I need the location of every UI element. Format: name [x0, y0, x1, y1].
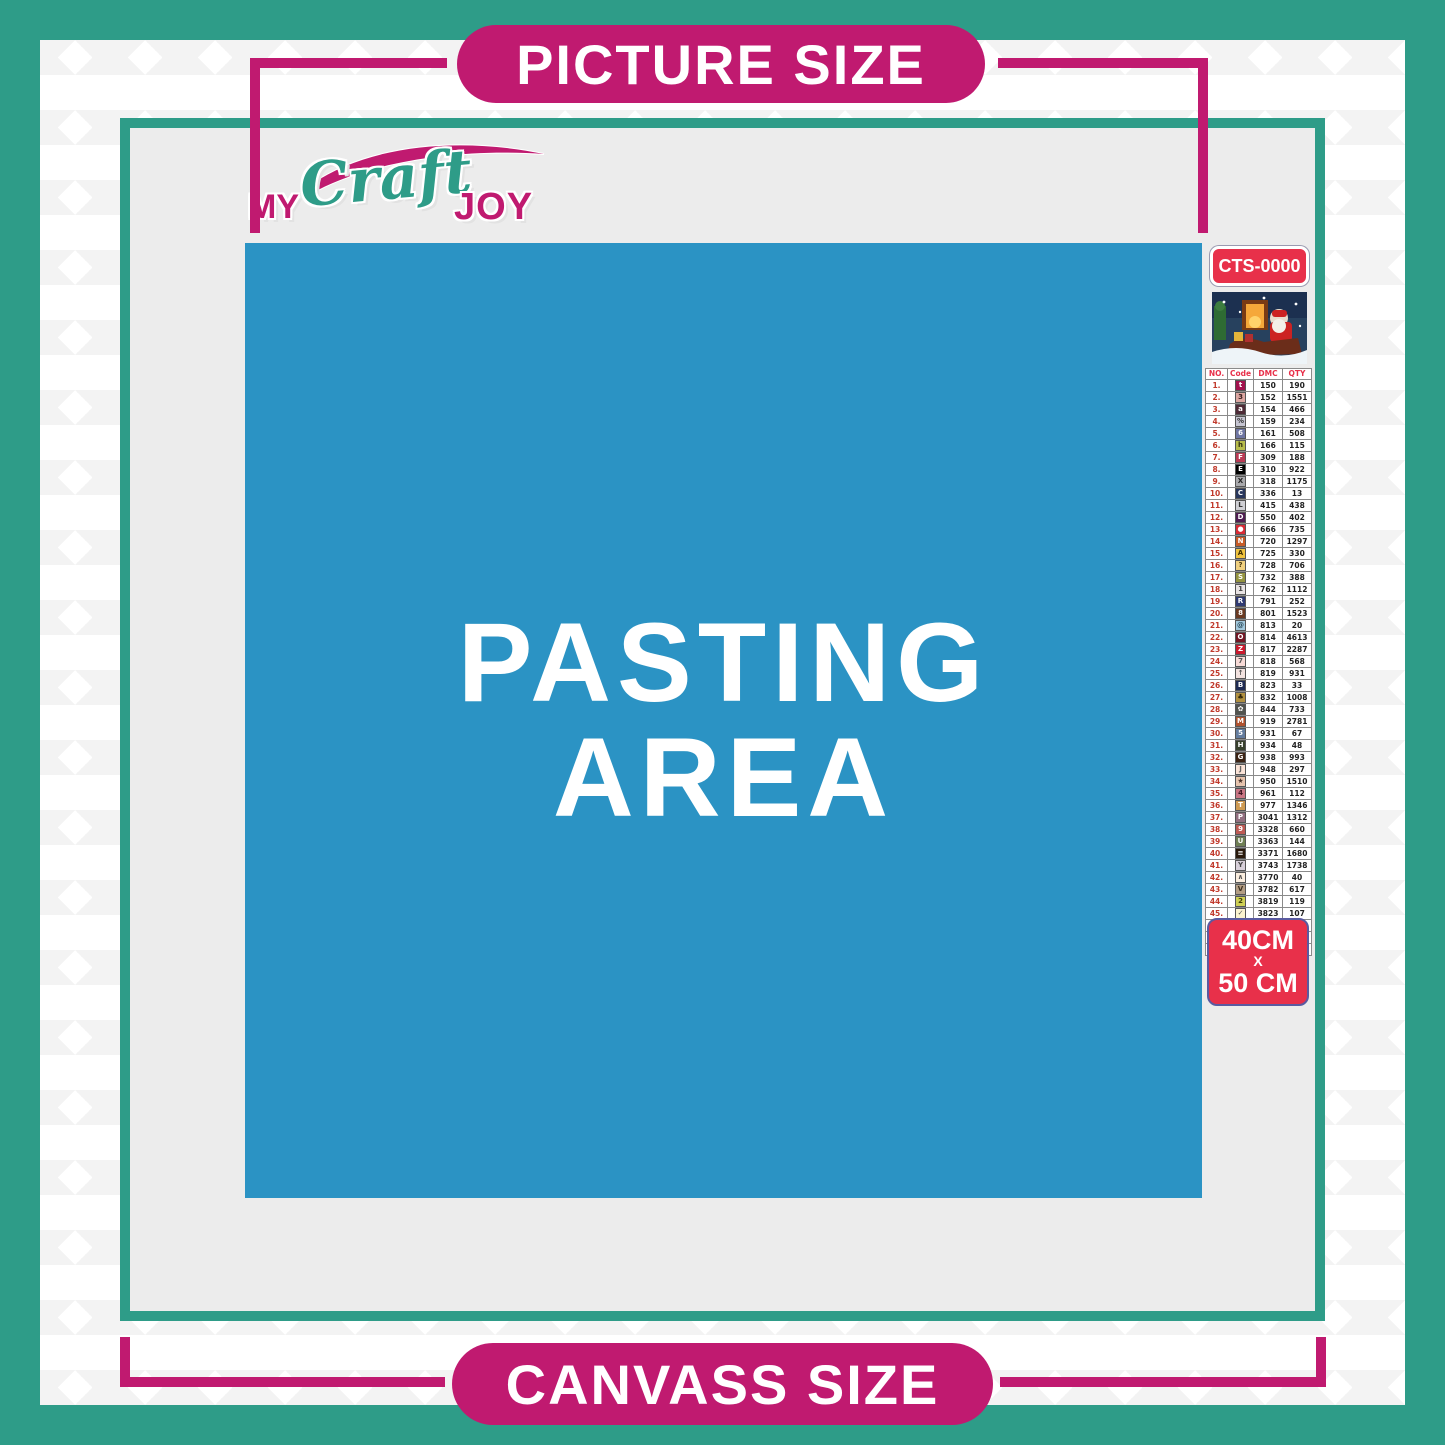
symbol-swatch: C — [1235, 488, 1246, 499]
dmc-code: 154 — [1254, 404, 1283, 416]
row-number: 17. — [1206, 572, 1228, 584]
qty-value: 144 — [1283, 836, 1312, 848]
qty-value: 1312 — [1283, 812, 1312, 824]
row-number: 8. — [1206, 464, 1228, 476]
row-number: 33. — [1206, 764, 1228, 776]
row-number: 7. — [1206, 452, 1228, 464]
row-number: 39. — [1206, 836, 1228, 848]
color-chart-row: 30.593167 — [1206, 728, 1312, 740]
symbol-swatch: ● — [1235, 524, 1246, 535]
row-number: 22. — [1206, 632, 1228, 644]
color-chart-row: 27.♣8321008 — [1206, 692, 1312, 704]
symbol-swatch: h — [1235, 440, 1246, 451]
dmc-code: 732 — [1254, 572, 1283, 584]
header-dmc: DMC — [1254, 369, 1283, 380]
qty-value: 20 — [1283, 620, 1312, 632]
row-number: 9. — [1206, 476, 1228, 488]
dmc-code: 666 — [1254, 524, 1283, 536]
header-qty: QTY — [1283, 369, 1312, 380]
qty-value: 922 — [1283, 464, 1312, 476]
symbol-cell: a — [1228, 404, 1254, 416]
row-number: 42. — [1206, 872, 1228, 884]
qty-value: 1346 — [1283, 800, 1312, 812]
dmc-code: 762 — [1254, 584, 1283, 596]
row-number: 21. — [1206, 620, 1228, 632]
row-number: 29. — [1206, 716, 1228, 728]
qty-value: 112 — [1283, 788, 1312, 800]
dmc-code: 813 — [1254, 620, 1283, 632]
color-chart-header-row: NO. Code DMC QTY — [1206, 369, 1312, 380]
color-chart-row: 1.t150190 — [1206, 380, 1312, 392]
dmc-code: 3371 — [1254, 848, 1283, 860]
symbol-swatch: a — [1235, 404, 1246, 415]
color-chart-row: 34.★9501510 — [1206, 776, 1312, 788]
color-chart-row: 29.M9192781 — [1206, 716, 1312, 728]
row-number: 4. — [1206, 416, 1228, 428]
qty-value: 190 — [1283, 380, 1312, 392]
symbol-cell: H — [1228, 740, 1254, 752]
row-number: 12. — [1206, 512, 1228, 524]
symbol-cell: X — [1228, 476, 1254, 488]
row-number: 32. — [1206, 752, 1228, 764]
symbol-cell: V — [1228, 884, 1254, 896]
row-number: 3. — [1206, 404, 1228, 416]
color-chart-row: 18.17621112 — [1206, 584, 1312, 596]
color-chart-row: 21.@81320 — [1206, 620, 1312, 632]
symbol-cell: U — [1228, 836, 1254, 848]
qty-value: 617 — [1283, 884, 1312, 896]
color-chart-row: 40.≡33711680 — [1206, 848, 1312, 860]
color-chart-row: 22.O8144613 — [1206, 632, 1312, 644]
color-chart-row: 10.C33613 — [1206, 488, 1312, 500]
dmc-code: 938 — [1254, 752, 1283, 764]
symbol-cell: 7 — [1228, 656, 1254, 668]
color-chart-row: 23.Z8172287 — [1206, 644, 1312, 656]
color-chart-row: 24.7818568 — [1206, 656, 1312, 668]
size-width: 40CM — [1222, 927, 1294, 954]
row-number: 31. — [1206, 740, 1228, 752]
qty-value: 466 — [1283, 404, 1312, 416]
color-chart-row: 15.A725330 — [1206, 548, 1312, 560]
symbol-cell: 2 — [1228, 896, 1254, 908]
qty-value: 188 — [1283, 452, 1312, 464]
symbol-swatch: % — [1235, 416, 1246, 427]
symbol-swatch: E — [1235, 464, 1246, 475]
poster-canvas: { "banners": { "top": "PICTURE SIZE", "b… — [0, 0, 1445, 1445]
color-chart-row: 9.X3181175 — [1206, 476, 1312, 488]
logo-word-craft: Craft — [297, 137, 474, 222]
symbol-cell: ★ — [1228, 776, 1254, 788]
canvass-frame-stub-right — [1316, 1337, 1326, 1387]
color-chart-row: 31.H93448 — [1206, 740, 1312, 752]
symbol-cell: ♣ — [1228, 692, 1254, 704]
kit-size-badge: 40CM X 50 CM — [1207, 918, 1309, 1006]
color-chart: NO. Code DMC QTY 1.t1501902.315215513.a1… — [1205, 368, 1311, 956]
qty-value: 1297 — [1283, 536, 1312, 548]
symbol-cell: O — [1228, 632, 1254, 644]
symbol-cell: ∧ — [1228, 872, 1254, 884]
symbol-swatch: H — [1235, 740, 1246, 751]
dmc-code: 919 — [1254, 716, 1283, 728]
row-number: 30. — [1206, 728, 1228, 740]
color-chart-row: 43.V3782617 — [1206, 884, 1312, 896]
symbol-swatch: M — [1235, 716, 1246, 727]
color-chart-row: 13.●666735 — [1206, 524, 1312, 536]
color-chart-row: 17.S732388 — [1206, 572, 1312, 584]
symbol-cell: ≡ — [1228, 848, 1254, 860]
qty-value: 1112 — [1283, 584, 1312, 596]
color-chart-row: 2.31521551 — [1206, 392, 1312, 404]
qty-value: 48 — [1283, 740, 1312, 752]
qty-value: 438 — [1283, 500, 1312, 512]
sku-label: CTS-0000 — [1218, 256, 1300, 277]
qty-value: 234 — [1283, 416, 1312, 428]
symbol-swatch: ≡ — [1235, 848, 1246, 859]
row-number: 38. — [1206, 824, 1228, 836]
symbol-swatch: ✿ — [1235, 704, 1246, 715]
qty-value: 13 — [1283, 488, 1312, 500]
symbol-swatch: O — [1235, 632, 1246, 643]
row-number: 20. — [1206, 608, 1228, 620]
symbol-swatch: ∧ — [1235, 872, 1246, 883]
symbol-cell: 3 — [1228, 392, 1254, 404]
color-chart-row: 11.L415438 — [1206, 500, 1312, 512]
symbol-swatch: 4 — [1235, 788, 1246, 799]
color-chart-row: 37.P30411312 — [1206, 812, 1312, 824]
dmc-code: 844 — [1254, 704, 1283, 716]
dmc-code: 948 — [1254, 764, 1283, 776]
picture-frame-line-left — [250, 58, 260, 233]
symbol-swatch: 7 — [1235, 656, 1246, 667]
qty-value: 2781 — [1283, 716, 1312, 728]
qty-value: 735 — [1283, 524, 1312, 536]
color-chart-row: 26.B82333 — [1206, 680, 1312, 692]
color-chart-row: 14.N7201297 — [1206, 536, 1312, 548]
symbol-cell: J — [1228, 764, 1254, 776]
color-chart-row: 25.↑819931 — [1206, 668, 1312, 680]
qty-value: 1738 — [1283, 860, 1312, 872]
qty-value: 931 — [1283, 668, 1312, 680]
qty-value: 330 — [1283, 548, 1312, 560]
dmc-code: 3770 — [1254, 872, 1283, 884]
symbol-swatch: P — [1235, 812, 1246, 823]
color-chart-row: 5.6161508 — [1206, 428, 1312, 440]
dmc-code: 725 — [1254, 548, 1283, 560]
qty-value: 40 — [1283, 872, 1312, 884]
color-chart-row: 39.U3363144 — [1206, 836, 1312, 848]
color-chart-row: 32.G938993 — [1206, 752, 1312, 764]
symbol-cell: N — [1228, 536, 1254, 548]
dmc-code: 819 — [1254, 668, 1283, 680]
dmc-code: 832 — [1254, 692, 1283, 704]
symbol-swatch: @ — [1235, 620, 1246, 631]
symbol-cell: ↑ — [1228, 668, 1254, 680]
size-height: 50 CM — [1218, 970, 1298, 997]
row-number: 1. — [1206, 380, 1228, 392]
qty-value: 733 — [1283, 704, 1312, 716]
pasting-area: PASTING AREA — [245, 243, 1202, 1198]
dmc-code: 309 — [1254, 452, 1283, 464]
symbol-cell: 4 — [1228, 788, 1254, 800]
color-chart-row: 42.∧377040 — [1206, 872, 1312, 884]
symbol-swatch: ? — [1235, 560, 1246, 571]
symbol-cell: @ — [1228, 620, 1254, 632]
dmc-code: 3743 — [1254, 860, 1283, 872]
symbol-swatch: T — [1235, 800, 1246, 811]
dmc-code: 931 — [1254, 728, 1283, 740]
symbol-swatch: 2 — [1235, 896, 1246, 907]
color-chart-row: 7.F309188 — [1206, 452, 1312, 464]
color-chart-row: 3.a154466 — [1206, 404, 1312, 416]
symbol-swatch: R — [1235, 596, 1246, 607]
symbol-swatch: Y — [1235, 860, 1246, 871]
qty-value: 388 — [1283, 572, 1312, 584]
symbol-cell: L — [1228, 500, 1254, 512]
symbol-swatch: N — [1235, 536, 1246, 547]
picture-frame-line-right — [1198, 58, 1208, 233]
dmc-code: 166 — [1254, 440, 1283, 452]
color-chart-row: 12.D550402 — [1206, 512, 1312, 524]
brand-logo: MY Craft JOY — [248, 148, 548, 248]
qty-value: 4613 — [1283, 632, 1312, 644]
qty-value: 67 — [1283, 728, 1312, 740]
symbol-swatch: 5 — [1235, 728, 1246, 739]
color-chart-row: 38.93328660 — [1206, 824, 1312, 836]
row-number: 43. — [1206, 884, 1228, 896]
qty-value: 1175 — [1283, 476, 1312, 488]
symbol-swatch: L — [1235, 500, 1246, 511]
pasting-area-line2: AREA — [553, 721, 894, 835]
symbol-cell: M — [1228, 716, 1254, 728]
row-number: 23. — [1206, 644, 1228, 656]
color-chart-body: 1.t1501902.315215513.a1544664.%1592345.6… — [1206, 380, 1312, 956]
row-number: 5. — [1206, 428, 1228, 440]
row-number: 15. — [1206, 548, 1228, 560]
row-number: 26. — [1206, 680, 1228, 692]
dmc-code: 310 — [1254, 464, 1283, 476]
row-number: 24. — [1206, 656, 1228, 668]
row-number: 36. — [1206, 800, 1228, 812]
symbol-cell: T — [1228, 800, 1254, 812]
qty-value: 115 — [1283, 440, 1312, 452]
dmc-code: 336 — [1254, 488, 1283, 500]
row-number: 34. — [1206, 776, 1228, 788]
symbol-cell: h — [1228, 440, 1254, 452]
color-chart-row: 19.R791252 — [1206, 596, 1312, 608]
symbol-swatch: 6 — [1235, 428, 1246, 439]
symbol-swatch: U — [1235, 836, 1246, 847]
row-number: 40. — [1206, 848, 1228, 860]
row-number: 41. — [1206, 860, 1228, 872]
symbol-cell: Y — [1228, 860, 1254, 872]
dmc-code: 934 — [1254, 740, 1283, 752]
symbol-swatch: 9 — [1235, 824, 1246, 835]
symbol-cell: E — [1228, 464, 1254, 476]
dmc-code: 791 — [1254, 596, 1283, 608]
picture-frame-line-top-right — [998, 58, 1208, 68]
qty-value: 402 — [1283, 512, 1312, 524]
row-number: 2. — [1206, 392, 1228, 404]
symbol-swatch: 3 — [1235, 392, 1246, 403]
row-number: 13. — [1206, 524, 1228, 536]
row-number: 19. — [1206, 596, 1228, 608]
symbol-cell: R — [1228, 596, 1254, 608]
christmas-scene-image — [1212, 292, 1307, 364]
qty-value: 993 — [1283, 752, 1312, 764]
qty-value: 252 — [1283, 596, 1312, 608]
qty-value: 1008 — [1283, 692, 1312, 704]
qty-value: 706 — [1283, 560, 1312, 572]
color-chart-row: 4.%159234 — [1206, 416, 1312, 428]
dmc-code: 823 — [1254, 680, 1283, 692]
dmc-code: 728 — [1254, 560, 1283, 572]
pasting-area-line1: PASTING — [458, 606, 990, 720]
dmc-code: 415 — [1254, 500, 1283, 512]
symbol-swatch: F — [1235, 452, 1246, 463]
symbol-cell: B — [1228, 680, 1254, 692]
qty-value: 660 — [1283, 824, 1312, 836]
symbol-cell: t — [1228, 380, 1254, 392]
symbol-cell: 1 — [1228, 584, 1254, 596]
row-number: 28. — [1206, 704, 1228, 716]
symbol-swatch: 8 — [1235, 608, 1246, 619]
dmc-code: 3819 — [1254, 896, 1283, 908]
symbol-swatch: J — [1235, 764, 1246, 775]
symbol-swatch: Z — [1235, 644, 1246, 655]
artwork-thumbnail — [1212, 292, 1307, 364]
canvass-frame-line-right — [1000, 1377, 1326, 1387]
picture-size-banner: PICTURE SIZE — [457, 25, 985, 103]
symbol-cell: 9 — [1228, 824, 1254, 836]
color-chart-row: 44.23819119 — [1206, 896, 1312, 908]
sku-badge: CTS-0000 — [1210, 246, 1309, 286]
symbol-cell: C — [1228, 488, 1254, 500]
qty-value: 33 — [1283, 680, 1312, 692]
symbol-cell: 5 — [1228, 728, 1254, 740]
dmc-code: 3041 — [1254, 812, 1283, 824]
symbol-cell: P — [1228, 812, 1254, 824]
dmc-code: 3328 — [1254, 824, 1283, 836]
symbol-swatch: B — [1235, 680, 1246, 691]
row-number: 25. — [1206, 668, 1228, 680]
qty-value: 1680 — [1283, 848, 1312, 860]
dmc-code: 801 — [1254, 608, 1283, 620]
symbol-cell: ? — [1228, 560, 1254, 572]
symbol-cell: Z — [1228, 644, 1254, 656]
qty-value: 2287 — [1283, 644, 1312, 656]
picture-frame-line-top-left — [250, 58, 447, 68]
qty-value: 508 — [1283, 428, 1312, 440]
header-code: Code — [1228, 369, 1254, 380]
canvass-size-banner: CANVASS SIZE — [452, 1343, 993, 1425]
symbol-swatch: 1 — [1235, 584, 1246, 595]
logo-word-joy: JOY — [454, 186, 533, 229]
dmc-code: 150 — [1254, 380, 1283, 392]
symbol-cell: S — [1228, 572, 1254, 584]
dmc-code: 318 — [1254, 476, 1283, 488]
row-number: 27. — [1206, 692, 1228, 704]
picture-size-banner-label: PICTURE SIZE — [516, 32, 926, 97]
dmc-code: 720 — [1254, 536, 1283, 548]
symbol-cell: ● — [1228, 524, 1254, 536]
symbol-cell: D — [1228, 512, 1254, 524]
dmc-code: 159 — [1254, 416, 1283, 428]
canvass-frame-line-left — [120, 1377, 445, 1387]
symbol-swatch: D — [1235, 512, 1246, 523]
row-number: 44. — [1206, 896, 1228, 908]
row-number: 14. — [1206, 536, 1228, 548]
row-number: 10. — [1206, 488, 1228, 500]
qty-value: 1551 — [1283, 392, 1312, 404]
color-chart-row: 41.Y37431738 — [1206, 860, 1312, 872]
symbol-cell: A — [1228, 548, 1254, 560]
dmc-code: 961 — [1254, 788, 1283, 800]
dmc-code: 950 — [1254, 776, 1283, 788]
dmc-code: 817 — [1254, 644, 1283, 656]
row-number: 37. — [1206, 812, 1228, 824]
qty-value: 568 — [1283, 656, 1312, 668]
symbol-swatch: S — [1235, 572, 1246, 583]
color-chart-row: 33.J948297 — [1206, 764, 1312, 776]
symbol-swatch: V — [1235, 884, 1246, 895]
color-chart-row: 35.4961112 — [1206, 788, 1312, 800]
color-chart-row: 36.T9771346 — [1206, 800, 1312, 812]
symbol-swatch: X — [1235, 476, 1246, 487]
row-number: 11. — [1206, 500, 1228, 512]
header-no: NO. — [1206, 369, 1228, 380]
row-number: 35. — [1206, 788, 1228, 800]
symbol-swatch: t — [1235, 380, 1246, 391]
row-number: 6. — [1206, 440, 1228, 452]
symbol-cell: 8 — [1228, 608, 1254, 620]
color-chart-row: 8.E310922 — [1206, 464, 1312, 476]
symbol-swatch: ↑ — [1235, 668, 1246, 679]
symbol-cell: 6 — [1228, 428, 1254, 440]
symbol-swatch: G — [1235, 752, 1246, 763]
dmc-code: 3782 — [1254, 884, 1283, 896]
color-chart-row: 28.✿844733 — [1206, 704, 1312, 716]
color-chart-row: 6.h166115 — [1206, 440, 1312, 452]
qty-value: 1523 — [1283, 608, 1312, 620]
dmc-code: 977 — [1254, 800, 1283, 812]
symbol-swatch: A — [1235, 548, 1246, 559]
symbol-swatch: ♣ — [1235, 692, 1246, 703]
dmc-code: 814 — [1254, 632, 1283, 644]
qty-value: 119 — [1283, 896, 1312, 908]
qty-value: 297 — [1283, 764, 1312, 776]
color-chart-table: NO. Code DMC QTY 1.t1501902.315215513.a1… — [1205, 368, 1312, 956]
color-chart-row: 16.?728706 — [1206, 560, 1312, 572]
symbol-cell: G — [1228, 752, 1254, 764]
dmc-code: 550 — [1254, 512, 1283, 524]
dmc-code: 3363 — [1254, 836, 1283, 848]
symbol-cell: % — [1228, 416, 1254, 428]
symbol-cell: F — [1228, 452, 1254, 464]
dmc-code: 161 — [1254, 428, 1283, 440]
color-chart-row: 20.88011523 — [1206, 608, 1312, 620]
dmc-code: 818 — [1254, 656, 1283, 668]
row-number: 16. — [1206, 560, 1228, 572]
row-number: 18. — [1206, 584, 1228, 596]
dmc-code: 152 — [1254, 392, 1283, 404]
symbol-swatch: ★ — [1235, 776, 1246, 787]
canvass-size-banner-label: CANVASS SIZE — [506, 1352, 940, 1417]
symbol-cell: ✿ — [1228, 704, 1254, 716]
qty-value: 1510 — [1283, 776, 1312, 788]
